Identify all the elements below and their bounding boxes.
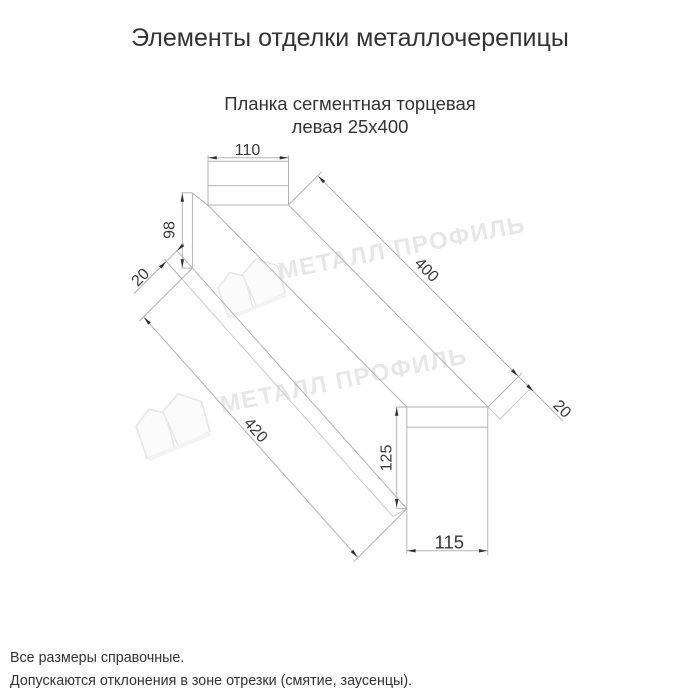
svg-text:110: 110 [235, 142, 261, 159]
svg-text:МЕТАЛЛ ПРОФИЛЬ: МЕТАЛЛ ПРОФИЛЬ [276, 211, 528, 286]
svg-text:115: 115 [435, 532, 465, 553]
svg-text:420: 420 [240, 415, 271, 446]
svg-text:400: 400 [411, 255, 442, 286]
svg-text:20: 20 [549, 397, 574, 422]
svg-text:125: 125 [379, 445, 396, 472]
svg-text:98: 98 [162, 221, 179, 239]
svg-text:20: 20 [129, 265, 154, 290]
